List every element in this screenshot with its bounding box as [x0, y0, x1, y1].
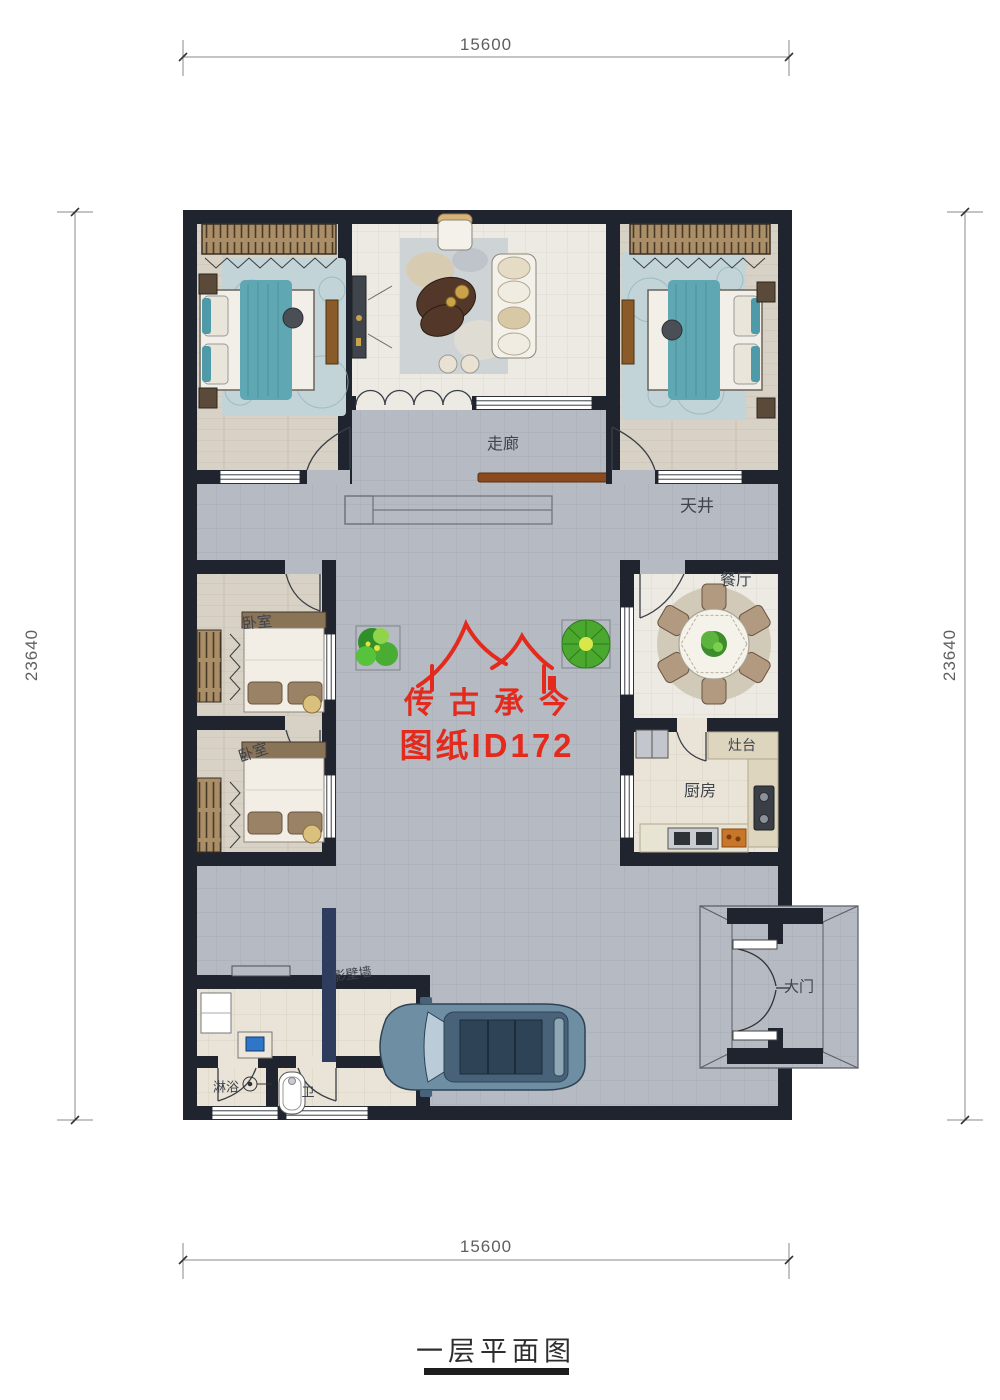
side-table	[461, 355, 479, 373]
car	[380, 997, 585, 1097]
cutting-board	[722, 829, 746, 847]
room-label-gate: 大门	[784, 976, 814, 997]
wardrobe	[197, 778, 221, 852]
room-label-kitchen: 厨房	[684, 777, 716, 801]
tv-console	[622, 300, 634, 364]
caption-underline	[424, 1368, 569, 1375]
room-label-bedroom-1: 卧室	[241, 610, 273, 634]
nightstand	[757, 398, 775, 418]
page-title: 一层平面图	[416, 1330, 576, 1369]
dimension-bottom: 15600	[460, 1237, 512, 1257]
wardrobe	[197, 630, 221, 702]
watermark-sheet-id: 图纸ID172	[399, 719, 574, 767]
room-label-dining: 餐厅	[720, 566, 752, 590]
nightstand	[199, 388, 217, 408]
nightstand	[199, 274, 217, 294]
floor-lamp	[303, 825, 321, 843]
nightstand	[757, 282, 775, 302]
bedroom-top-left-furniture	[199, 224, 348, 416]
gate-door-leaf	[733, 940, 777, 949]
corridor-bench	[478, 473, 612, 482]
room-label-shower: 淋浴	[213, 1077, 239, 1096]
wardrobe	[630, 224, 770, 254]
dimension-left: 23640	[22, 629, 42, 681]
room-label-courtyard: 天井	[680, 492, 714, 517]
dimension-right: 23640	[940, 629, 960, 681]
floor-plan-page: 15600 15600 23640 23640 走廊 天井 卧室 卧室 餐厅 灶…	[0, 0, 1000, 1400]
main-gate	[700, 906, 858, 1068]
gate-door-leaf	[733, 1031, 777, 1040]
watermark-brand: 传古承今	[404, 678, 584, 722]
room-label-bath: 卫	[301, 1082, 314, 1101]
plant-right	[562, 620, 610, 668]
wardrobe	[202, 224, 336, 254]
floor-lamp	[303, 695, 321, 713]
tv-console	[326, 300, 338, 364]
room-label-corridor: 走廊	[487, 430, 519, 454]
room-label-stove: 灶台	[728, 735, 756, 755]
bedroom-top-right-furniture	[622, 224, 775, 420]
plant-left	[356, 626, 400, 670]
side-table	[439, 355, 457, 373]
dimension-top: 15600	[460, 35, 512, 55]
